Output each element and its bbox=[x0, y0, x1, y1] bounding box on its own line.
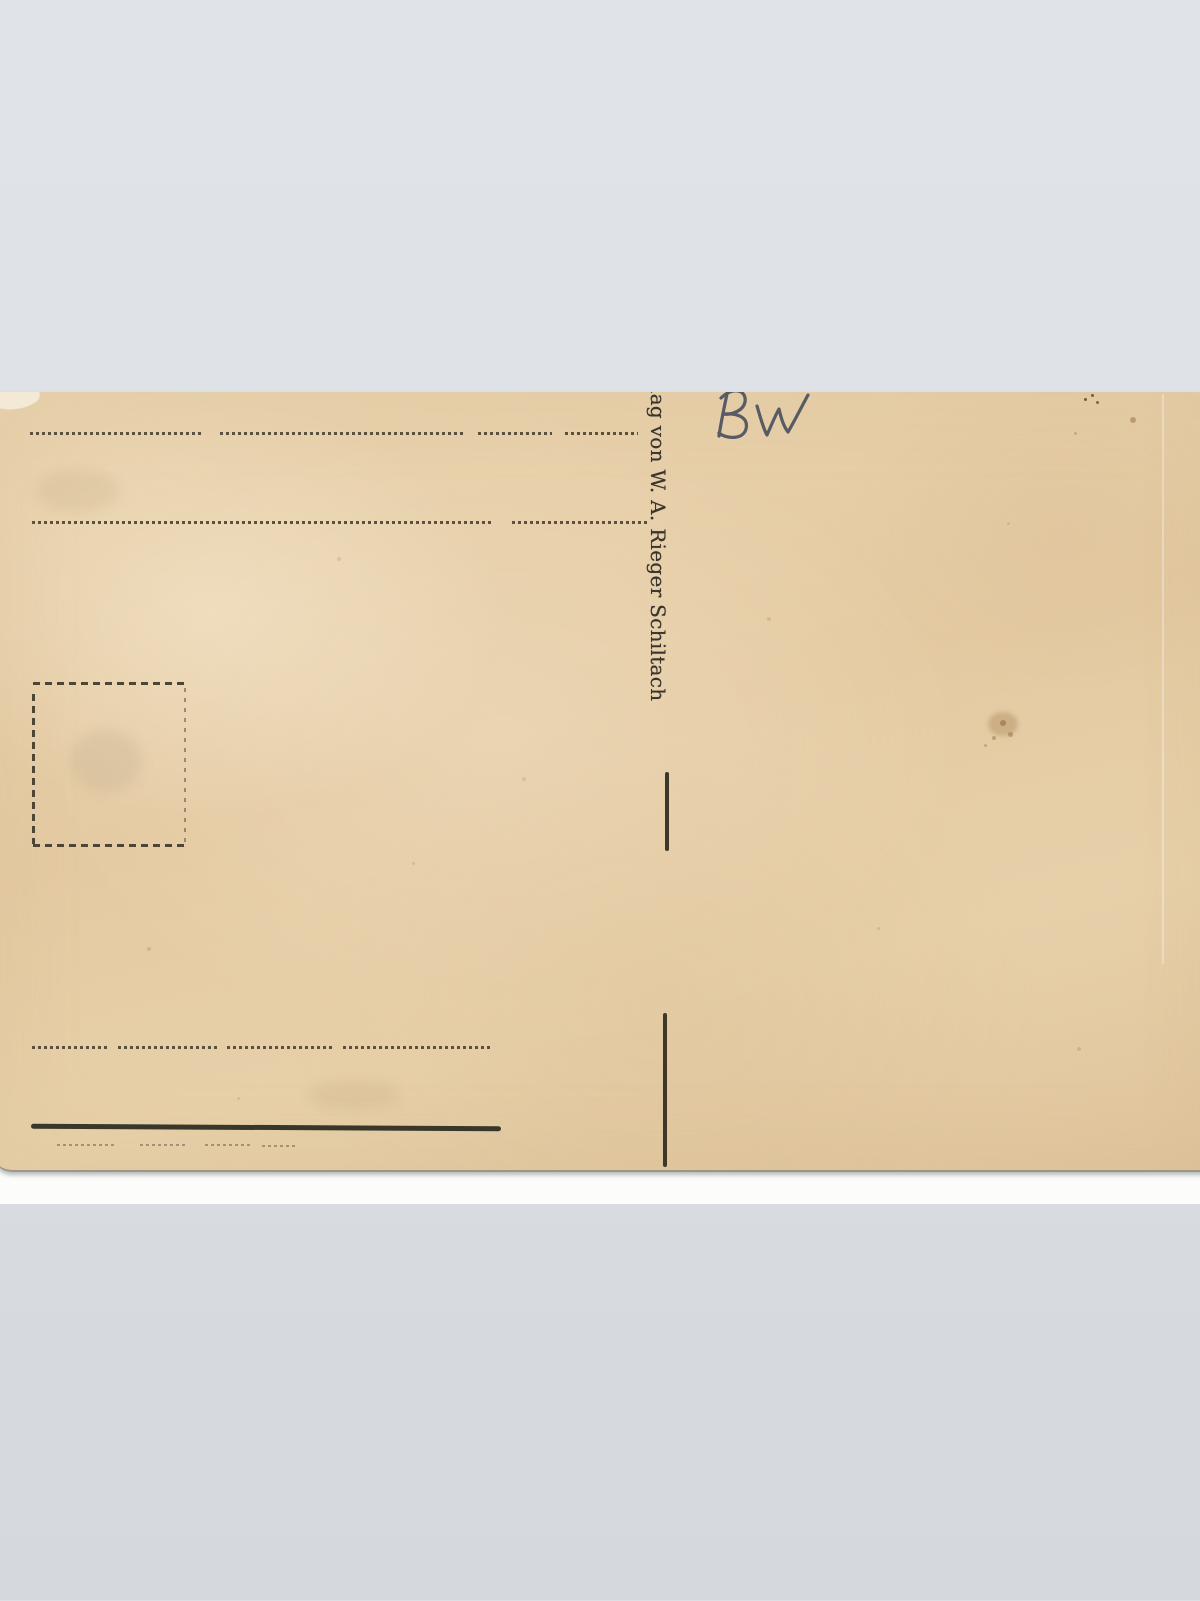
faint-dashed-line-segment bbox=[57, 1144, 115, 1146]
scanned-postcard-page: lag von W. A. Rieger Schiltach BW bbox=[0, 0, 1200, 1600]
paper-smudge bbox=[307, 1080, 399, 1110]
paper-fleck bbox=[147, 947, 151, 951]
paper-fleck bbox=[1007, 522, 1010, 525]
paper-fleck bbox=[522, 777, 526, 781]
paper-fleck bbox=[767, 617, 771, 621]
faint-dashed-line-segment bbox=[140, 1144, 187, 1146]
address-line-2-segment bbox=[32, 521, 494, 524]
stamp-box-left-edge bbox=[32, 694, 35, 844]
paper-fleck bbox=[1077, 1047, 1081, 1051]
ink-speck bbox=[1096, 401, 1099, 404]
pencil-strokes bbox=[719, 392, 808, 437]
paper-smudge bbox=[37, 470, 119, 512]
divider-stroke-lower bbox=[663, 1013, 667, 1167]
paper-fleck bbox=[877, 927, 880, 930]
address-line-1-segment bbox=[565, 432, 638, 435]
paper-fleck bbox=[337, 557, 341, 561]
publisher-imprint-text: lag von W. A. Rieger Schiltach bbox=[646, 392, 670, 701]
address-line-1-segment bbox=[478, 432, 552, 435]
stain-dot bbox=[1130, 417, 1136, 423]
postcard-back: lag von W. A. Rieger Schiltach BW bbox=[0, 392, 1200, 1172]
message-line-segment bbox=[32, 1046, 110, 1049]
divider-stroke-upper bbox=[665, 772, 669, 851]
stain-dot bbox=[1008, 732, 1013, 737]
address-line-1-segment bbox=[220, 432, 464, 435]
paper-fleck bbox=[412, 862, 415, 865]
message-line-segment bbox=[118, 1046, 217, 1049]
letter-b-bowls-stroke bbox=[719, 392, 746, 437]
address-line-1-segment bbox=[30, 432, 203, 435]
paper-crease bbox=[1162, 394, 1164, 964]
stamp-box-right-edge bbox=[184, 688, 186, 842]
address-line-2-segment bbox=[512, 521, 648, 524]
stain-dot bbox=[984, 744, 987, 747]
stain-dot bbox=[1074, 432, 1077, 435]
message-line-segment bbox=[343, 1046, 492, 1049]
stamp-box-bottom-edge bbox=[33, 844, 186, 847]
ink-speck bbox=[1091, 394, 1094, 397]
handwritten-note-bw: BW bbox=[713, 392, 813, 450]
faint-dashed-line-segment bbox=[262, 1145, 298, 1147]
stamp-box-top-edge bbox=[33, 682, 186, 685]
stain-dot bbox=[1000, 720, 1006, 726]
ink-speck bbox=[1084, 398, 1087, 401]
stain-dot bbox=[992, 736, 996, 740]
worn-corner-patch bbox=[0, 392, 41, 411]
paper-fleck bbox=[237, 1097, 240, 1100]
signature-underline bbox=[31, 1124, 501, 1131]
message-line-segment bbox=[227, 1046, 333, 1049]
paper-smudge bbox=[70, 730, 142, 792]
faint-dashed-line-segment bbox=[205, 1144, 252, 1146]
letter-w-stroke bbox=[757, 395, 808, 435]
